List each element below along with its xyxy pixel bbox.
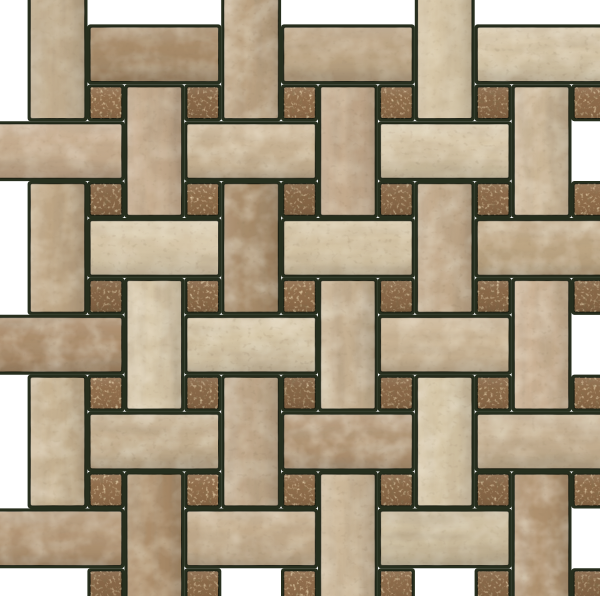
accent-dot-tile: [381, 377, 413, 409]
travertine-tile-horizontal: [284, 414, 412, 468]
travertine-tile-vertical: [224, 184, 278, 312]
accent-dot-tile: [477, 281, 509, 313]
accent-dot-tile: [187, 281, 219, 313]
accent-dot-tile: [90, 87, 122, 119]
accent-dot-tile: [574, 474, 600, 506]
accent-dot-tile: [477, 87, 509, 119]
travertine-tile-vertical: [321, 474, 375, 596]
travertine-tile-horizontal: [284, 221, 412, 275]
accent-dot-tile: [187, 377, 219, 409]
travertine-tile-horizontal: [477, 221, 600, 275]
travertine-tile-vertical: [514, 87, 568, 215]
travertine-tile-vertical: [418, 377, 472, 505]
accent-dot-tile: [90, 474, 122, 506]
accent-dot-tile: [477, 184, 509, 216]
accent-dot-tile: [187, 184, 219, 216]
accent-dot-tile: [187, 474, 219, 506]
travertine-tile-horizontal: [477, 414, 600, 468]
accent-dot-tile: [574, 87, 600, 119]
accent-dot-tile: [284, 377, 316, 409]
accent-dot-tile: [284, 571, 316, 596]
travertine-tile-horizontal: [381, 511, 509, 565]
accent-dot-tile: [574, 281, 600, 313]
travertine-tile-horizontal: [187, 318, 315, 372]
travertine-tile-vertical: [514, 281, 568, 409]
travertine-tile-vertical: [30, 0, 84, 119]
travertine-tile-horizontal: [90, 27, 218, 81]
travertine-tile-vertical: [30, 377, 84, 505]
basketweave-mosaic-sheet: [0, 0, 600, 596]
accent-dot-tile: [284, 474, 316, 506]
mosaic-tile-product-image: [0, 0, 600, 596]
accent-dot-tile: [381, 474, 413, 506]
accent-dot-tile: [574, 377, 600, 409]
travertine-tile-horizontal: [187, 124, 315, 178]
accent-dot-tile: [381, 281, 413, 313]
accent-dot-tile: [477, 377, 509, 409]
accent-dot-tile: [381, 571, 413, 596]
accent-dot-tile: [284, 184, 316, 216]
accent-dot-tile: [574, 571, 600, 596]
accent-dot-tile: [187, 571, 219, 596]
travertine-tile-horizontal: [0, 124, 122, 178]
travertine-tile-vertical: [224, 377, 278, 505]
travertine-tile-vertical: [127, 474, 181, 596]
travertine-tile-vertical: [321, 281, 375, 409]
travertine-tile-vertical: [127, 281, 181, 409]
accent-dot-tile: [90, 571, 122, 596]
travertine-tile-vertical: [514, 474, 568, 596]
accent-dot-tile: [477, 571, 509, 596]
travertine-tile-horizontal: [0, 318, 122, 372]
travertine-tile-vertical: [418, 184, 472, 312]
accent-dot-tile: [381, 87, 413, 119]
travertine-tile-horizontal: [0, 511, 122, 565]
travertine-tile-vertical: [127, 87, 181, 215]
travertine-tile-vertical: [418, 0, 472, 119]
accent-dot-tile: [477, 474, 509, 506]
travertine-tile-horizontal: [90, 221, 218, 275]
travertine-tile-horizontal: [381, 124, 509, 178]
travertine-tile-horizontal: [477, 27, 600, 81]
travertine-tile-horizontal: [90, 414, 218, 468]
accent-dot-tile: [187, 87, 219, 119]
travertine-tile-vertical: [30, 184, 84, 312]
accent-dot-tile: [284, 87, 316, 119]
accent-dot-tile: [381, 184, 413, 216]
accent-dot-tile: [90, 184, 122, 216]
travertine-tile-horizontal: [381, 318, 509, 372]
travertine-tile-horizontal: [187, 511, 315, 565]
travertine-tile-vertical: [321, 87, 375, 215]
travertine-tile-horizontal: [284, 27, 412, 81]
accent-dot-tile: [284, 281, 316, 313]
travertine-tile-vertical: [224, 0, 278, 119]
accent-dot-tile: [574, 184, 600, 216]
accent-dot-tile: [90, 281, 122, 313]
accent-dot-tile: [90, 377, 122, 409]
